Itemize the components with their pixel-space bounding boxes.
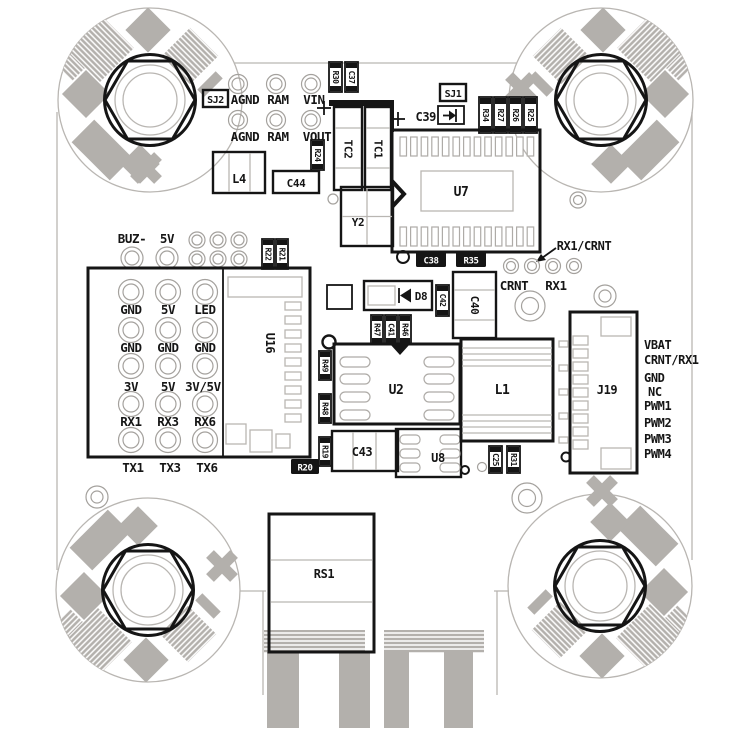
crnt-pad <box>522 298 539 315</box>
ref-r24: R24 <box>311 140 324 170</box>
j19-pin-pwm4: PWM4 <box>644 447 671 461</box>
via-pad <box>570 192 586 208</box>
pad-label-ram: RAM <box>267 92 288 107</box>
svg-text:R34: R34 <box>481 109 490 122</box>
svg-text:U2: U2 <box>389 383 404 398</box>
svg-text:J19: J19 <box>597 383 618 397</box>
j19-pin-pwm2: PWM2 <box>644 416 671 430</box>
svg-text:TC2: TC2 <box>342 140 355 159</box>
component-u8: U8 <box>396 429 461 477</box>
svg-text:R48: R48 <box>321 402 330 415</box>
component-tc2: TC2 <box>334 107 362 190</box>
component-c43: C43 <box>332 431 398 471</box>
grid-label: GND <box>194 340 215 355</box>
ref-r19: R19 <box>319 437 331 466</box>
pcb-layout-diagram: AGND RAM VIN AGND RAM VOUT SJ2 R30 C37 R… <box>0 0 750 750</box>
ref-c38: C38 <box>416 252 446 267</box>
component-u16: GND 5V LED GND GND GND 3V 5V 3V/5V RX1 R… <box>88 268 310 457</box>
svg-text:SJ1: SJ1 <box>445 89 462 100</box>
svg-text:C25: C25 <box>491 453 500 466</box>
svg-text:R22: R22 <box>264 248 273 261</box>
ref-r31: R31 <box>507 446 520 473</box>
svg-text:R27: R27 <box>496 109 505 122</box>
pad-label-agnd: AGND <box>231 92 260 107</box>
component-c40: C40 <box>453 272 496 338</box>
ref-c41: C41 <box>385 315 397 344</box>
svg-text:R35: R35 <box>463 257 478 267</box>
j19-pin-nc: NC <box>648 385 662 399</box>
component-c44: C44 <box>273 171 319 193</box>
svg-text:C43: C43 <box>352 445 373 459</box>
thick-trace <box>329 100 393 106</box>
ref-r47: R47 <box>371 315 383 344</box>
note-rx1-crnt: RX1/CRNT <box>557 239 612 253</box>
svg-text:R20: R20 <box>297 464 312 474</box>
via-pad <box>328 194 338 204</box>
corner-bottom-right <box>508 494 695 679</box>
component-tc1: TC1 <box>365 107 391 190</box>
pad-label-ram2: RAM <box>267 129 288 144</box>
via-pad <box>574 196 583 205</box>
component-l1: L1 <box>461 339 553 441</box>
ref-r30: R30 <box>329 62 342 92</box>
j19-pin-pwm1: PWM1 <box>644 399 671 413</box>
ref-r27: R27 <box>494 97 507 133</box>
ref-r21: R21 <box>276 239 288 269</box>
via-pad <box>86 486 108 508</box>
ref-c42: C42 <box>436 285 449 316</box>
via-pad <box>512 483 542 513</box>
j19-pin-pwm3: PWM3 <box>644 432 671 446</box>
ref-r46: R46 <box>399 315 411 344</box>
ref-r49: R49 <box>319 351 331 380</box>
component-pad-box <box>327 285 352 309</box>
svg-text:R30: R30 <box>331 71 340 84</box>
grid-label: 5V <box>161 379 176 394</box>
j19-pins <box>559 336 588 449</box>
via-pad <box>594 285 616 307</box>
ref-r48: R48 <box>319 394 331 423</box>
svg-text:U8: U8 <box>431 451 445 465</box>
j19-pin-labels: VBAT CRNT/RX1 GND NC PWM1 PWM2 PWM3 PWM4 <box>644 338 699 461</box>
via-pad <box>91 491 103 503</box>
svg-text:R24: R24 <box>313 149 322 162</box>
grid-label: RX6 <box>194 414 215 429</box>
u16-label: U16 <box>263 333 277 354</box>
corner-bottom-left <box>53 498 240 683</box>
j19-pin-gnd: GND <box>644 371 665 385</box>
svg-text:TC1: TC1 <box>372 140 385 159</box>
component-u2: U2 <box>334 344 460 424</box>
grid-label: RX3 <box>157 414 178 429</box>
component-sj1: SJ1 <box>440 84 466 101</box>
pad-label-rx1: RX1 <box>545 278 566 293</box>
svg-text:R25: R25 <box>526 109 535 122</box>
svg-text:C38: C38 <box>423 257 438 267</box>
ref-c39-label: C39 <box>416 110 437 124</box>
grid-label: 3V <box>124 379 139 394</box>
u16-module-detail <box>226 277 302 452</box>
svg-text:U7: U7 <box>454 185 469 200</box>
grid-label: RX1 <box>120 414 141 429</box>
svg-text:R19: R19 <box>321 445 330 458</box>
component-d8: D8 <box>364 281 432 310</box>
pad-label-crnt: CRNT <box>500 278 529 293</box>
ref-r34: R34 <box>479 97 492 133</box>
grid-label-tx6: TX6 <box>196 460 217 475</box>
component-u7: U7 <box>392 130 540 252</box>
component-y2: Y2 <box>341 187 393 246</box>
crnt-pad <box>515 291 545 321</box>
svg-text:L4: L4 <box>232 172 246 186</box>
crnt-rx1-pads <box>504 259 582 274</box>
ref-r22: R22 <box>262 239 274 269</box>
j19-pin-crnt-rx1: CRNT/RX1 <box>644 353 699 367</box>
svg-text:R49: R49 <box>321 359 330 372</box>
x-mark-icon <box>586 475 618 507</box>
via-pad <box>478 463 487 472</box>
svg-text:R46: R46 <box>401 323 410 336</box>
svg-text:C42: C42 <box>438 294 447 307</box>
via-pad <box>461 466 469 474</box>
svg-text:D8: D8 <box>415 290 427 303</box>
ref-c37: C37 <box>345 62 358 92</box>
ref-r35: R35 <box>456 252 486 267</box>
svg-text:C44: C44 <box>287 177 306 190</box>
grid-label: GND <box>120 340 141 355</box>
component-j19: J19 <box>559 312 637 473</box>
svg-text:L1: L1 <box>495 383 510 398</box>
svg-text:RS1: RS1 <box>314 567 335 581</box>
component-c39 <box>438 106 464 124</box>
ref-r25: R25 <box>524 97 537 133</box>
pad-label-5v: 5V <box>160 231 175 246</box>
via-pad <box>519 490 536 507</box>
x-mark-icon <box>206 550 238 582</box>
svg-text:R26: R26 <box>511 109 520 122</box>
svg-text:R21: R21 <box>278 248 287 261</box>
svg-text:SJ2: SJ2 <box>207 95 224 106</box>
grid-label: 3V/5V <box>185 379 222 394</box>
grid-label-tx1: TX1 <box>122 460 143 475</box>
svg-text:Y2: Y2 <box>352 216 364 229</box>
grid-label: GND <box>157 340 178 355</box>
grid-label: LED <box>194 302 215 317</box>
pad-label-agnd2: AGND <box>231 129 260 144</box>
grid-label-tx3: TX3 <box>159 460 180 475</box>
ref-c25: C25 <box>489 446 502 473</box>
grid-label: 5V <box>161 302 176 317</box>
via-pad <box>599 290 611 302</box>
svg-text:C41: C41 <box>387 323 396 336</box>
svg-text:R31: R31 <box>509 453 518 466</box>
pad-label-vin: VIN <box>303 92 324 107</box>
grid-label: GND <box>120 302 141 317</box>
svg-text:C40: C40 <box>468 296 481 315</box>
ref-r20: R20 <box>291 459 319 474</box>
svg-text:R47: R47 <box>373 323 382 336</box>
u8-pads <box>400 435 460 472</box>
svg-text:C37: C37 <box>347 71 356 84</box>
pad-label-buz: BUZ- <box>118 231 147 246</box>
j19-pin-vbat: VBAT <box>644 338 671 352</box>
ref-r26: R26 <box>509 97 522 133</box>
